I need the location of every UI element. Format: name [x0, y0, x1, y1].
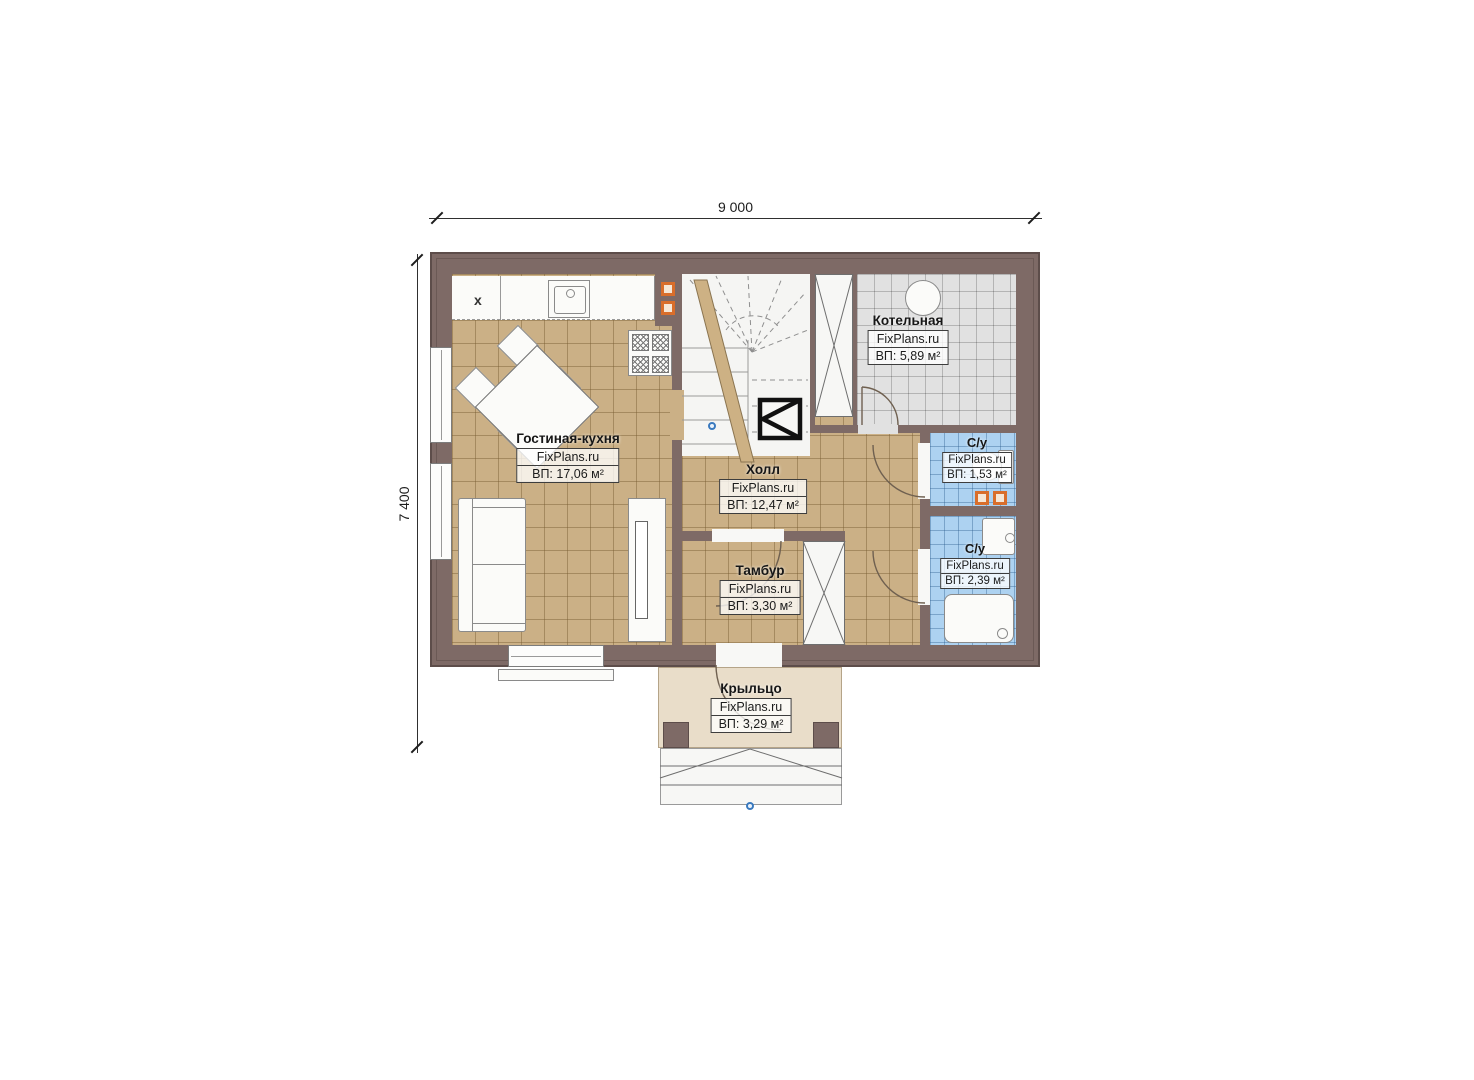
label-box: FixPlans.ru ВП: 12,47 м²	[719, 479, 807, 514]
brand-label: FixPlans.ru	[869, 331, 948, 347]
area-label: ВП: 12,47 м²	[720, 496, 806, 513]
dimension-line-left	[417, 254, 418, 753]
label-box: FixPlans.ru ВП: 1,53 м²	[942, 452, 1012, 483]
vent-shaft-boiler	[815, 274, 853, 417]
door-leaf-entry	[716, 643, 782, 669]
window-bottom	[508, 645, 604, 667]
wall-hall-bath	[920, 603, 930, 645]
window-left-1	[430, 347, 452, 443]
room-label-bath2: С/у FixPlans.ru ВП: 2,39 м²	[940, 541, 1010, 589]
area-label: ВП: 5,89 м²	[869, 347, 948, 364]
sofa-armrest	[472, 507, 525, 508]
door-leaf-bath1	[918, 443, 930, 499]
room-name: С/у	[940, 541, 1010, 556]
brand-label: FixPlans.ru	[941, 559, 1009, 573]
label-box: FixPlans.ru ВП: 17,06 м²	[516, 448, 619, 483]
room-name: Котельная	[868, 313, 949, 328]
porch-pillar	[813, 722, 839, 748]
tv-icon	[635, 521, 648, 619]
burner-icon	[652, 334, 669, 351]
door-leaf-bath2	[918, 549, 930, 605]
stairwell-floor	[682, 274, 810, 456]
opening-boiler-door	[858, 424, 898, 434]
opening-living-hall	[670, 390, 684, 440]
sofa-armrest	[472, 623, 525, 624]
dimension-label-width: 9 000	[437, 199, 1034, 215]
wall-between-bathrooms	[930, 506, 1016, 516]
window-left-2	[430, 463, 452, 560]
dimension-line-top	[429, 218, 1042, 219]
room-label-hall: Холл FixPlans.ru ВП: 12,47 м²	[719, 462, 807, 514]
area-label: ВП: 17,06 м²	[517, 465, 618, 482]
label-box: FixPlans.ru ВП: 5,89 м²	[868, 330, 949, 365]
room-name: Тамбур	[720, 563, 801, 578]
porch-steps	[660, 748, 842, 805]
sink-faucet-icon	[566, 289, 575, 298]
area-label: ВП: 3,30 м²	[721, 597, 800, 614]
shower-tray-icon	[944, 594, 1014, 643]
vent-block-icon	[975, 491, 989, 505]
wall-tambour-top-left	[672, 531, 712, 541]
burner-icon	[652, 356, 669, 373]
room-label-bath1: С/у FixPlans.ru ВП: 1,53 м²	[942, 435, 1012, 483]
vent-block-icon	[993, 491, 1007, 505]
room-name: С/у	[942, 435, 1012, 450]
room-name: Гостиная-кухня	[516, 431, 619, 446]
sofa-cushion-split	[472, 564, 525, 565]
reference-dot	[746, 802, 754, 810]
reference-dot	[708, 422, 716, 430]
kitchen-counter-divider	[500, 276, 501, 320]
area-label: ВП: 1,53 м²	[943, 467, 1011, 482]
kitchen-x-marker: x	[474, 292, 482, 308]
brand-label: FixPlans.ru	[517, 449, 618, 465]
area-label: ВП: 3,29 м²	[712, 715, 791, 732]
shower-drain-icon	[997, 628, 1008, 639]
sofa-back	[459, 499, 473, 631]
room-label-porch: Крыльцо FixPlans.ru ВП: 3,29 м²	[711, 681, 792, 733]
wall-living-hall	[672, 438, 682, 645]
wall-hall-boiler-right	[898, 425, 1016, 433]
brand-label: FixPlans.ru	[721, 581, 800, 597]
burner-icon	[632, 356, 649, 373]
vent-block-icon	[661, 282, 675, 296]
vent-block-icon	[661, 301, 675, 315]
window-sill	[498, 669, 614, 681]
porch-pillar	[663, 722, 689, 748]
wall-hall-bath	[920, 497, 930, 551]
sofa	[458, 498, 526, 632]
label-box: FixPlans.ru ВП: 3,29 м²	[711, 698, 792, 733]
room-name: Крыльцо	[711, 681, 792, 696]
area-label: ВП: 2,39 м²	[941, 573, 1009, 588]
kitchen-sink	[548, 280, 590, 318]
door-leaf-tambour	[712, 529, 784, 542]
room-label-living: Гостиная-кухня FixPlans.ru ВП: 17,06 м²	[516, 431, 619, 483]
room-name: Холл	[719, 462, 807, 477]
label-box: FixPlans.ru ВП: 2,39 м²	[940, 558, 1010, 589]
wall-shaft-boiler	[853, 274, 857, 432]
burner-icon	[632, 334, 649, 351]
brand-label: FixPlans.ru	[712, 699, 791, 715]
brand-label: FixPlans.ru	[720, 480, 806, 496]
wall-hall-boiler-left	[810, 425, 860, 433]
stove-cooktop	[628, 330, 672, 376]
tv-cabinet	[628, 498, 666, 642]
vent-shaft-tambour	[803, 541, 845, 645]
brand-label: FixPlans.ru	[943, 453, 1011, 467]
room-label-tambour: Тамбур FixPlans.ru ВП: 3,30 м²	[720, 563, 801, 615]
dimension-label-height: 7 400	[396, 472, 412, 536]
boiler-tank-icon	[905, 280, 941, 316]
label-box: FixPlans.ru ВП: 3,30 м²	[720, 580, 801, 615]
wall-tambour-top-right	[784, 531, 845, 541]
room-label-boiler: Котельная FixPlans.ru ВП: 5,89 м²	[868, 313, 949, 365]
floor-plan-canvas: 9 000 7 400	[0, 0, 1474, 1080]
